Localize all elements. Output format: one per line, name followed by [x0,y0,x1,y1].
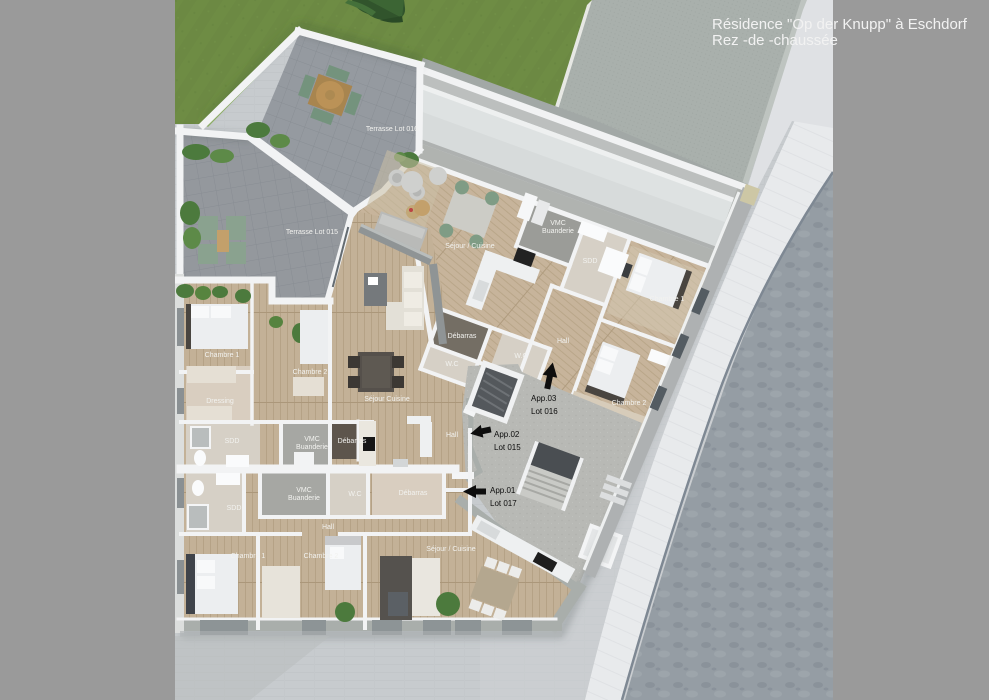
svg-text:Buanderie: Buanderie [296,444,328,451]
svg-text:Débarras: Débarras [399,490,428,497]
svg-text:Lot 015: Lot 015 [494,443,521,452]
svg-text:App.03: App.03 [531,394,557,403]
svg-text:Terrasse Lot 016: Terrasse Lot 016 [366,126,418,133]
svg-text:SDD: SDD [227,505,242,512]
svg-text:W.C: W.C [445,361,458,368]
svg-text:Chambre 1: Chambre 1 [650,296,685,303]
svg-text:Dressing: Dressing [206,398,234,405]
svg-text:Lot 016: Lot 016 [531,407,558,416]
svg-text:Hall: Hall [322,524,335,531]
svg-text:App.02: App.02 [494,430,520,439]
svg-text:Hall: Hall [557,338,570,345]
svg-text:Chambre 1: Chambre 1 [205,352,240,359]
svg-text:Chambre 2: Chambre 2 [304,553,339,560]
svg-text:Chambre 2: Chambre 2 [293,369,328,376]
svg-text:Chambre 1: Chambre 1 [231,553,266,560]
svg-text:Débarras: Débarras [338,438,367,445]
svg-text:Hall: Hall [446,432,459,439]
svg-text:Rez -de -chaussée: Rez -de -chaussée [712,32,838,49]
svg-text:Résidence "Op der Knupp" à Esc: Résidence "Op der Knupp" à Eschdorf [712,16,968,33]
svg-text:Terrasse Lot 015: Terrasse Lot 015 [286,229,338,236]
svg-text:Buanderie: Buanderie [542,228,574,235]
svg-text:Lot 017: Lot 017 [490,499,517,508]
svg-text:Séjour / Cuisine: Séjour / Cuisine [426,546,476,553]
svg-text:App.01: App.01 [490,486,516,495]
svg-text:VMC: VMC [304,436,320,443]
svg-text:VMC: VMC [296,487,312,494]
svg-text:SDD: SDD [583,258,598,265]
svg-text:Débarras: Débarras [448,333,477,340]
svg-text:Séjour / Cuisine: Séjour / Cuisine [445,243,495,250]
svg-text:VMC: VMC [550,220,566,227]
svg-text:W.C: W.C [514,353,527,360]
svg-text:Chambre 2: Chambre 2 [612,400,647,407]
svg-text:SDD: SDD [225,438,240,445]
svg-text:Buanderie: Buanderie [288,495,320,502]
svg-text:Séjour Cuisine: Séjour Cuisine [364,396,410,403]
svg-text:W.C: W.C [348,491,361,498]
